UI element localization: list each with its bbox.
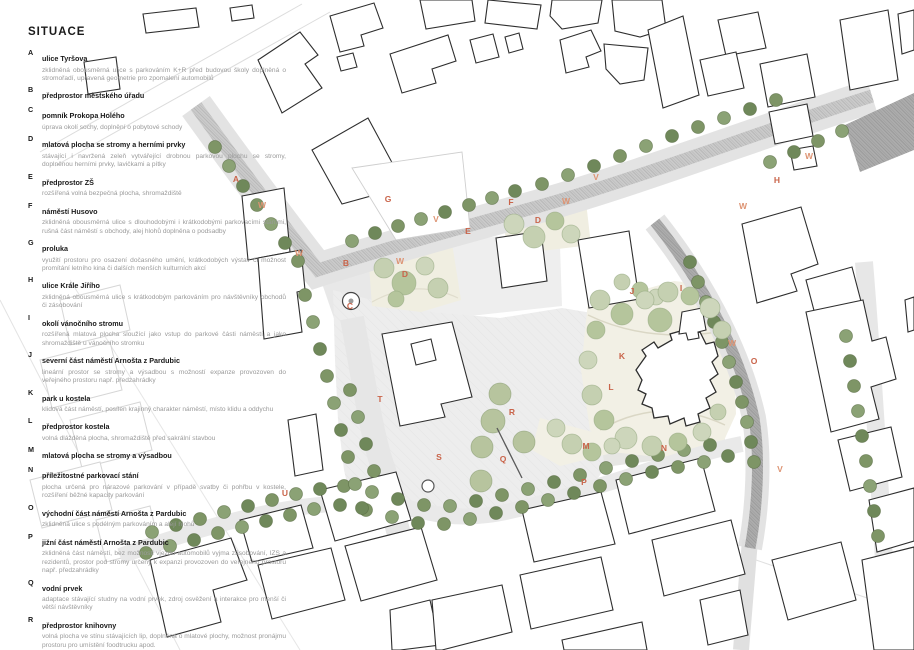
map-area-label-V: V bbox=[777, 464, 783, 474]
legend-item: Q vodní prvek adaptace stávající studny … bbox=[28, 578, 286, 613]
park-tree-icon bbox=[587, 321, 605, 339]
legend-item-title: náměstí Husovo bbox=[42, 207, 98, 216]
park-tree-icon bbox=[547, 419, 565, 437]
street-tree-icon bbox=[415, 213, 428, 226]
legend-item: M mlatová plocha se stromy a výsadbou bbox=[28, 445, 286, 463]
street-tree-icon bbox=[366, 486, 379, 499]
square-tree-icon bbox=[489, 383, 511, 405]
street-tree-icon bbox=[346, 235, 359, 248]
legend-item-desc: využití prostoru pro osazení dočasného u… bbox=[42, 257, 286, 274]
park-tree-icon bbox=[693, 423, 711, 441]
legend-item-title: předprostor knihovny bbox=[42, 621, 116, 630]
street-tree-icon bbox=[844, 355, 857, 368]
street-tree-icon bbox=[748, 456, 761, 469]
street-tree-icon bbox=[562, 169, 575, 182]
street-tree-icon bbox=[666, 130, 679, 143]
legend-item-desc: volná plocha ve stínu stávajících lip, d… bbox=[42, 633, 286, 650]
street-tree-icon bbox=[840, 330, 853, 343]
street-tree-icon bbox=[516, 501, 529, 514]
legend-item-letter: J bbox=[28, 350, 42, 385]
legend-item-title: okolí vánočního stromu bbox=[42, 319, 123, 328]
page-title: SITUACE bbox=[28, 26, 286, 38]
legend-item: D mlatová plocha se stromy a herními prv… bbox=[28, 134, 286, 169]
street-tree-icon bbox=[299, 289, 312, 302]
street-tree-icon bbox=[640, 140, 653, 153]
street-tree-icon bbox=[368, 465, 381, 478]
street-tree-icon bbox=[741, 416, 754, 429]
legend-item: R předprostor knihovny volná plocha ve s… bbox=[28, 615, 286, 650]
street-tree-icon bbox=[736, 396, 749, 409]
street-tree-icon bbox=[730, 376, 743, 389]
legend-item-letter: C bbox=[28, 105, 42, 132]
map-area-label-H: H bbox=[774, 175, 780, 185]
legend-item-desc: zklidněná část náměstí, bez možnosti vje… bbox=[42, 550, 286, 575]
legend-item-letter: K bbox=[28, 388, 42, 415]
street-tree-icon bbox=[308, 503, 321, 516]
legend-item-letter: I bbox=[28, 313, 42, 348]
legend-item-desc: zklidněná ulice s podélným parkováním a … bbox=[42, 521, 286, 529]
street-tree-icon bbox=[412, 517, 425, 530]
square-tree-icon bbox=[471, 436, 493, 458]
street-tree-icon bbox=[463, 199, 476, 212]
legend-item: F náměstí Husovo zklidněná obousměrná ul… bbox=[28, 201, 286, 236]
street-tree-icon bbox=[321, 370, 334, 383]
street-tree-icon bbox=[770, 94, 783, 107]
park-tree-icon bbox=[590, 290, 610, 310]
legend-item-letter: P bbox=[28, 532, 42, 576]
street-tree-icon bbox=[684, 256, 697, 269]
street-tree-icon bbox=[860, 455, 873, 468]
legend-item-letter: Q bbox=[28, 578, 42, 613]
park-tree-icon bbox=[562, 434, 582, 454]
park-tree-icon bbox=[582, 385, 602, 405]
map-area-label-S: S bbox=[436, 452, 442, 462]
street-tree-icon bbox=[812, 135, 825, 148]
map-area-label-N: N bbox=[661, 443, 667, 453]
legend-item: G proluka využití prostoru pro osazení d… bbox=[28, 238, 286, 273]
street-tree-icon bbox=[464, 513, 477, 526]
street-tree-icon bbox=[692, 121, 705, 134]
street-tree-icon bbox=[444, 500, 457, 513]
map-area-label-F: F bbox=[508, 197, 513, 207]
map-area-label-W: W bbox=[295, 248, 304, 258]
map-area-label-J: J bbox=[630, 286, 635, 296]
street-tree-icon bbox=[392, 493, 405, 506]
legend-item-title: mlatová plocha se stromy a herními prvky bbox=[42, 140, 185, 149]
legend-item-title: proluka bbox=[42, 244, 68, 253]
legend-item-desc: plocha určená pro nárazové parkování v p… bbox=[42, 484, 286, 501]
street-tree-icon bbox=[788, 146, 801, 159]
legend-item-letter: D bbox=[28, 134, 42, 169]
legend-item-desc: zklidněná obousměrná ulice s parkováním … bbox=[42, 67, 286, 84]
park-tree-icon bbox=[614, 274, 630, 290]
vacant-lot-g bbox=[352, 152, 470, 240]
legend-item-desc: zklidněná obousměrná ulice s dlouhodobým… bbox=[42, 219, 286, 236]
street-tree-icon bbox=[864, 480, 877, 493]
park-tree-icon bbox=[546, 212, 564, 230]
street-tree-icon bbox=[290, 488, 303, 501]
park-tree-icon bbox=[504, 214, 524, 234]
well-water-feature bbox=[422, 480, 434, 492]
street-tree-icon bbox=[342, 451, 355, 464]
street-tree-icon bbox=[344, 384, 357, 397]
street-tree-icon bbox=[386, 511, 399, 524]
park-tree-icon bbox=[642, 436, 662, 456]
legend-item-desc: klidová část náměstí, posílen krajinný c… bbox=[42, 406, 286, 414]
legend-item-title: severní část náměstí Arnošta z Pardubic bbox=[42, 356, 180, 365]
legend-item-title: předprostor ZŠ bbox=[42, 178, 94, 187]
legend-item-letter: L bbox=[28, 416, 42, 443]
legend-item-letter: R bbox=[28, 615, 42, 650]
map-area-label-D: D bbox=[402, 269, 408, 279]
park-tree-icon bbox=[636, 291, 654, 309]
street-tree-icon bbox=[356, 502, 369, 515]
map-area-label-M: M bbox=[582, 441, 589, 451]
park-tree-icon bbox=[416, 257, 434, 275]
street-tree-icon bbox=[594, 480, 607, 493]
map-area-label-C: C bbox=[347, 301, 353, 311]
street-tree-icon bbox=[542, 494, 555, 507]
street-tree-icon bbox=[470, 495, 483, 508]
legend-item: N příležitostné parkovací stání plocha u… bbox=[28, 465, 286, 500]
legend-item-letter: O bbox=[28, 503, 42, 530]
street-tree-icon bbox=[626, 455, 639, 468]
street-tree-icon bbox=[509, 185, 522, 198]
map-area-label-G: G bbox=[385, 194, 392, 204]
map-area-label-V: V bbox=[593, 172, 599, 182]
legend-item-desc: stávající i navržená zeleň vytvářející d… bbox=[42, 153, 286, 170]
street-tree-icon bbox=[722, 450, 735, 463]
map-area-label-K: K bbox=[619, 351, 626, 361]
park-tree-icon bbox=[604, 438, 620, 454]
map-area-label-L: L bbox=[608, 382, 613, 392]
legend-item-desc: zklidněná obousměrná ulice s krátkodobým… bbox=[42, 294, 286, 311]
legend-item-title: předprostor městského úřadu bbox=[42, 91, 144, 100]
legend-item-title: jižní část náměstí Arnošta z Pardubic bbox=[42, 538, 169, 547]
street-tree-icon bbox=[620, 473, 633, 486]
street-tree-icon bbox=[438, 518, 451, 531]
park-tree-icon bbox=[658, 282, 678, 302]
map-area-label-P: P bbox=[581, 477, 587, 487]
legend-item-title: ulice Tyršova bbox=[42, 54, 87, 63]
map-area-label-Q: Q bbox=[500, 454, 507, 464]
legend-item-desc: úprava okolí sochy, doplnění o pobytové … bbox=[42, 124, 286, 132]
street-tree-icon bbox=[360, 438, 373, 451]
square-tree-icon bbox=[513, 431, 535, 453]
map-area-label-E: E bbox=[465, 226, 471, 236]
map-area-label-W: W bbox=[739, 201, 748, 211]
street-tree-icon bbox=[335, 424, 348, 437]
park-tree-icon bbox=[594, 410, 614, 430]
map-area-label-W: W bbox=[805, 151, 814, 161]
street-tree-icon bbox=[352, 411, 365, 424]
square-tree-icon bbox=[481, 409, 505, 433]
legend-item-title: vodní prvek bbox=[42, 584, 82, 593]
legend-item-desc: adaptace stávající studny na vodní prvek… bbox=[42, 596, 286, 613]
legend-item: O východní část náměstí Arnošta z Pardub… bbox=[28, 503, 286, 530]
street-tree-icon bbox=[698, 456, 711, 469]
street-tree-icon bbox=[568, 487, 581, 500]
legend-item: H ulice Krále Jiřího zklidněná obousměrn… bbox=[28, 275, 286, 310]
legend-items: A ulice Tyršova zklidněná obousměrná uli… bbox=[28, 48, 286, 650]
legend-item-desc: rozšířená volná bezpečná plocha, shromaž… bbox=[42, 190, 286, 198]
street-tree-icon bbox=[490, 507, 503, 520]
map-area-label-I: I bbox=[680, 283, 682, 293]
park-tree-icon bbox=[648, 308, 672, 332]
street-tree-icon bbox=[672, 461, 685, 474]
street-tree-icon bbox=[486, 192, 499, 205]
map-area-label-W: W bbox=[396, 256, 405, 266]
legend-item: J severní část náměstí Arnošta z Pardubi… bbox=[28, 350, 286, 385]
map-area-label-W: W bbox=[728, 338, 737, 348]
legend-item: E předprostor ZŠ rozšířená volná bezpečn… bbox=[28, 172, 286, 199]
street-tree-icon bbox=[548, 476, 561, 489]
legend-item: A ulice Tyršova zklidněná obousměrná uli… bbox=[28, 48, 286, 83]
map-area-label-D: D bbox=[535, 215, 541, 225]
street-tree-icon bbox=[439, 206, 452, 219]
map-area-label-V: V bbox=[433, 214, 439, 224]
legend-item-desc: volná dlážděná plocha, shromaždiště před… bbox=[42, 435, 286, 443]
park-tree-icon bbox=[700, 298, 720, 318]
street-tree-icon bbox=[744, 103, 757, 116]
park-tree-icon bbox=[710, 404, 726, 420]
legend-item-letter: E bbox=[28, 172, 42, 199]
street-tree-icon bbox=[392, 220, 405, 233]
legend-item-title: pomník Prokopa Holého bbox=[42, 111, 125, 120]
street-tree-icon bbox=[692, 276, 705, 289]
legend-item-letter: F bbox=[28, 201, 42, 236]
street-tree-icon bbox=[745, 436, 758, 449]
park-tree-icon bbox=[713, 321, 731, 339]
legend-item-letter: B bbox=[28, 85, 42, 103]
street-tree-icon bbox=[314, 483, 327, 496]
street-tree-icon bbox=[307, 316, 320, 329]
street-tree-icon bbox=[334, 499, 347, 512]
street-tree-icon bbox=[764, 156, 777, 169]
site-plan-page: AWWBCGDVEFDWVWHWWIJKLMNOWPQRSTUV SITUACE… bbox=[0, 0, 914, 650]
park-tree-icon bbox=[681, 287, 699, 305]
park-tree-icon bbox=[579, 351, 597, 369]
street-tree-icon bbox=[496, 489, 509, 502]
street-tree-icon bbox=[536, 178, 549, 191]
legend-item: I okolí vánočního stromu rozšířená mlato… bbox=[28, 313, 286, 348]
map-area-label-R: R bbox=[509, 407, 515, 417]
street-tree-icon bbox=[614, 150, 627, 163]
street-tree-icon bbox=[856, 430, 869, 443]
square-tree-icon bbox=[470, 470, 492, 492]
legend-item-letter: N bbox=[28, 465, 42, 500]
street-tree-icon bbox=[349, 478, 362, 491]
legend-item-title: mlatová plocha se stromy a výsadbou bbox=[42, 451, 172, 460]
street-tree-icon bbox=[872, 530, 885, 543]
legend-item-title: ulice Krále Jiřího bbox=[42, 281, 100, 290]
park-tree-icon bbox=[428, 278, 448, 298]
street-tree-icon bbox=[369, 227, 382, 240]
park-tree-icon bbox=[669, 433, 687, 451]
park-tree-icon bbox=[523, 226, 545, 248]
park-tree-icon bbox=[611, 303, 633, 325]
street-tree-icon bbox=[314, 343, 327, 356]
legend-item-letter: H bbox=[28, 275, 42, 310]
street-tree-icon bbox=[646, 466, 659, 479]
map-area-label-O: O bbox=[751, 356, 758, 366]
map-area-label-W: W bbox=[562, 196, 571, 206]
park-tree-icon bbox=[388, 291, 404, 307]
street-tree-icon bbox=[852, 405, 865, 418]
street-tree-icon bbox=[718, 112, 731, 125]
street-tree-icon bbox=[723, 356, 736, 369]
street-tree-icon bbox=[848, 380, 861, 393]
legend-item-title: východní část náměstí Arnošta z Pardubic bbox=[42, 509, 186, 518]
legend-item-desc: lineární prostor se stromy a výsadbou s … bbox=[42, 369, 286, 386]
legend-item-letter: G bbox=[28, 238, 42, 273]
street-tree-icon bbox=[836, 125, 849, 138]
street-tree-icon bbox=[600, 462, 613, 475]
street-tree-icon bbox=[418, 499, 431, 512]
legend-item: C pomník Prokopa Holého úprava okolí soc… bbox=[28, 105, 286, 132]
park-tree-icon bbox=[374, 258, 394, 278]
legend-item-letter: A bbox=[28, 48, 42, 83]
legend: SITUACE A ulice Tyršova zklidněná obousm… bbox=[28, 26, 286, 650]
street-tree-icon bbox=[522, 483, 535, 496]
map-area-label-T: T bbox=[377, 394, 383, 404]
street-tree-icon bbox=[588, 160, 601, 173]
street-tree-icon bbox=[868, 505, 881, 518]
legend-item: B předprostor městského úřadu bbox=[28, 85, 286, 103]
legend-item-title: předprostor kostela bbox=[42, 422, 110, 431]
legend-item-desc: rozšířená mlatová plocha sloužící jako v… bbox=[42, 331, 286, 348]
legend-item: L předprostor kostela volná dlážděná plo… bbox=[28, 416, 286, 443]
legend-item: P jižní část náměstí Arnošta z Pardubic … bbox=[28, 532, 286, 576]
legend-item: K park u kostela klidová část náměstí, p… bbox=[28, 388, 286, 415]
map-area-label-B: B bbox=[343, 258, 349, 268]
legend-item-title: příležitostné parkovací stání bbox=[42, 471, 139, 480]
park-tree-icon bbox=[562, 225, 580, 243]
legend-item-letter: M bbox=[28, 445, 42, 463]
legend-item-title: park u kostela bbox=[42, 394, 90, 403]
street-tree-icon bbox=[328, 397, 341, 410]
